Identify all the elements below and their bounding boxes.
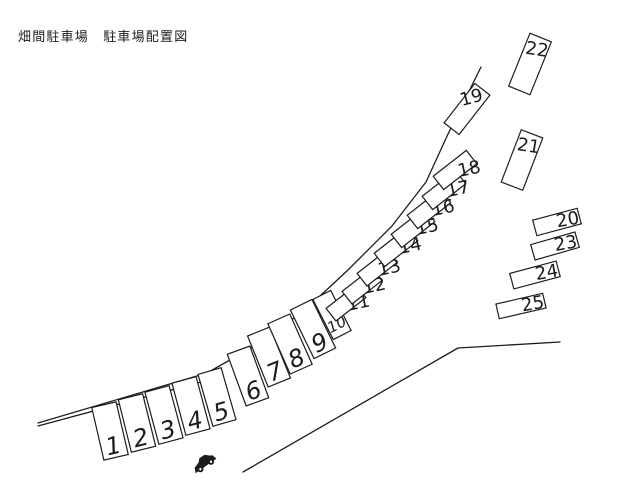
parking-space-number: 25 xyxy=(520,292,546,317)
parking-space-number: 23 xyxy=(553,231,579,256)
parking-space-number: 24 xyxy=(534,260,560,285)
parking-space-number: 18 xyxy=(456,157,483,182)
parking-layout-page: 畑間駐車場 駐車場配置図 123456789101112131415161718… xyxy=(0,0,640,480)
parking-space-number: 21 xyxy=(516,134,542,158)
parking-space-number: 22 xyxy=(524,38,550,62)
car-icon xyxy=(191,451,218,475)
parking-map: 1234567891011121314151617181920212223242… xyxy=(0,0,640,480)
parking-space-number: 20 xyxy=(555,208,581,233)
